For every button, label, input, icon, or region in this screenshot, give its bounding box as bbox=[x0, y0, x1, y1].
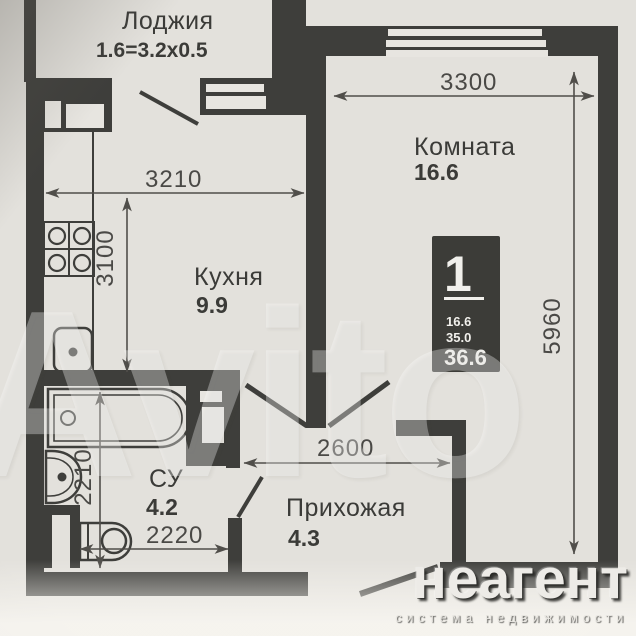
washing-machine-symbol bbox=[42, 505, 80, 568]
room-window-bar-2 bbox=[386, 40, 546, 47]
dimension-label-bathroom-width: 2220 bbox=[146, 522, 203, 549]
dimension-label-bathroom-depth: 2210 bbox=[70, 448, 97, 505]
balcony-window-large bbox=[66, 104, 104, 128]
badge-divider bbox=[444, 297, 484, 300]
entry-door-swing bbox=[360, 567, 438, 594]
dimension-label-hallway-width: 2600 bbox=[317, 435, 374, 462]
room-window-bar-1 bbox=[388, 29, 542, 36]
kitchen-sink-symbol bbox=[54, 328, 92, 372]
room-label-kitchen: Кухня bbox=[194, 263, 263, 291]
bathroom-door-swing bbox=[238, 477, 262, 517]
wall-bathroom-right-upper bbox=[226, 386, 240, 468]
wall-loggia-left bbox=[24, 0, 36, 82]
kitchen-door-swing bbox=[246, 385, 307, 426]
dimension-label-apartment-depth: 5960 bbox=[539, 297, 566, 354]
wall-outer-bottom bbox=[26, 572, 308, 596]
room-area-bathroom: 4.2 bbox=[146, 494, 178, 520]
floorplan-photo: 3300 5960 3210 3100 2600 2210 2220 Лоджи… bbox=[0, 0, 636, 636]
kitchen-window-bar-2 bbox=[206, 96, 266, 109]
room-door-swing bbox=[329, 382, 389, 426]
room-area-loggia: 1.6=3.2x0.5 bbox=[96, 39, 208, 62]
room-window-bar-3 bbox=[386, 50, 548, 57]
kitchen-window-bar-1 bbox=[206, 84, 264, 92]
room-label-loggia: Лоджия bbox=[122, 7, 214, 35]
stove-symbol bbox=[44, 222, 94, 276]
info-badge: 1 16.6 35.0 36.6 bbox=[432, 236, 500, 372]
dimension-label-kitchen-width: 3210 bbox=[145, 166, 202, 193]
floor-plan-svg: 3300 5960 3210 3100 2600 2210 2220 Лоджи… bbox=[0, 0, 636, 636]
wall-entry-bottom bbox=[440, 562, 618, 588]
badge-rooms-count: 1 bbox=[444, 246, 472, 302]
room-area-room: 16.6 bbox=[414, 159, 459, 185]
wall-outer-left bbox=[26, 78, 44, 596]
room-area-kitchen: 9.9 bbox=[196, 292, 228, 318]
bathtub-symbol bbox=[48, 389, 190, 447]
badge-mid-area: 35.0 bbox=[446, 330, 471, 345]
dimension-label-kitchen-depth: 3100 bbox=[92, 229, 119, 286]
room-label-hallway: Прихожая bbox=[286, 494, 406, 522]
balcony-window-small bbox=[45, 101, 61, 128]
room-area-hallway: 4.3 bbox=[288, 525, 320, 551]
badge-living-area: 16.6 bbox=[446, 314, 471, 329]
wall-hallway-corner-v bbox=[452, 420, 466, 565]
badge-total-area: 36.6 bbox=[444, 345, 487, 370]
dimension-label-room-width: 3300 bbox=[440, 69, 497, 96]
toilet-symbol bbox=[80, 523, 131, 560]
vent-duct-symbol bbox=[186, 384, 228, 466]
room-label-bathroom: СУ bbox=[149, 465, 183, 493]
loggia-door-swing bbox=[140, 92, 198, 124]
wall-bathroom-door-stub bbox=[228, 518, 242, 572]
wall-loggia-room-divider bbox=[272, 0, 306, 115]
room-label-room: Комната bbox=[414, 133, 515, 161]
wall-kitchen-room-divider bbox=[306, 26, 326, 428]
wall-outer-right bbox=[598, 26, 618, 584]
